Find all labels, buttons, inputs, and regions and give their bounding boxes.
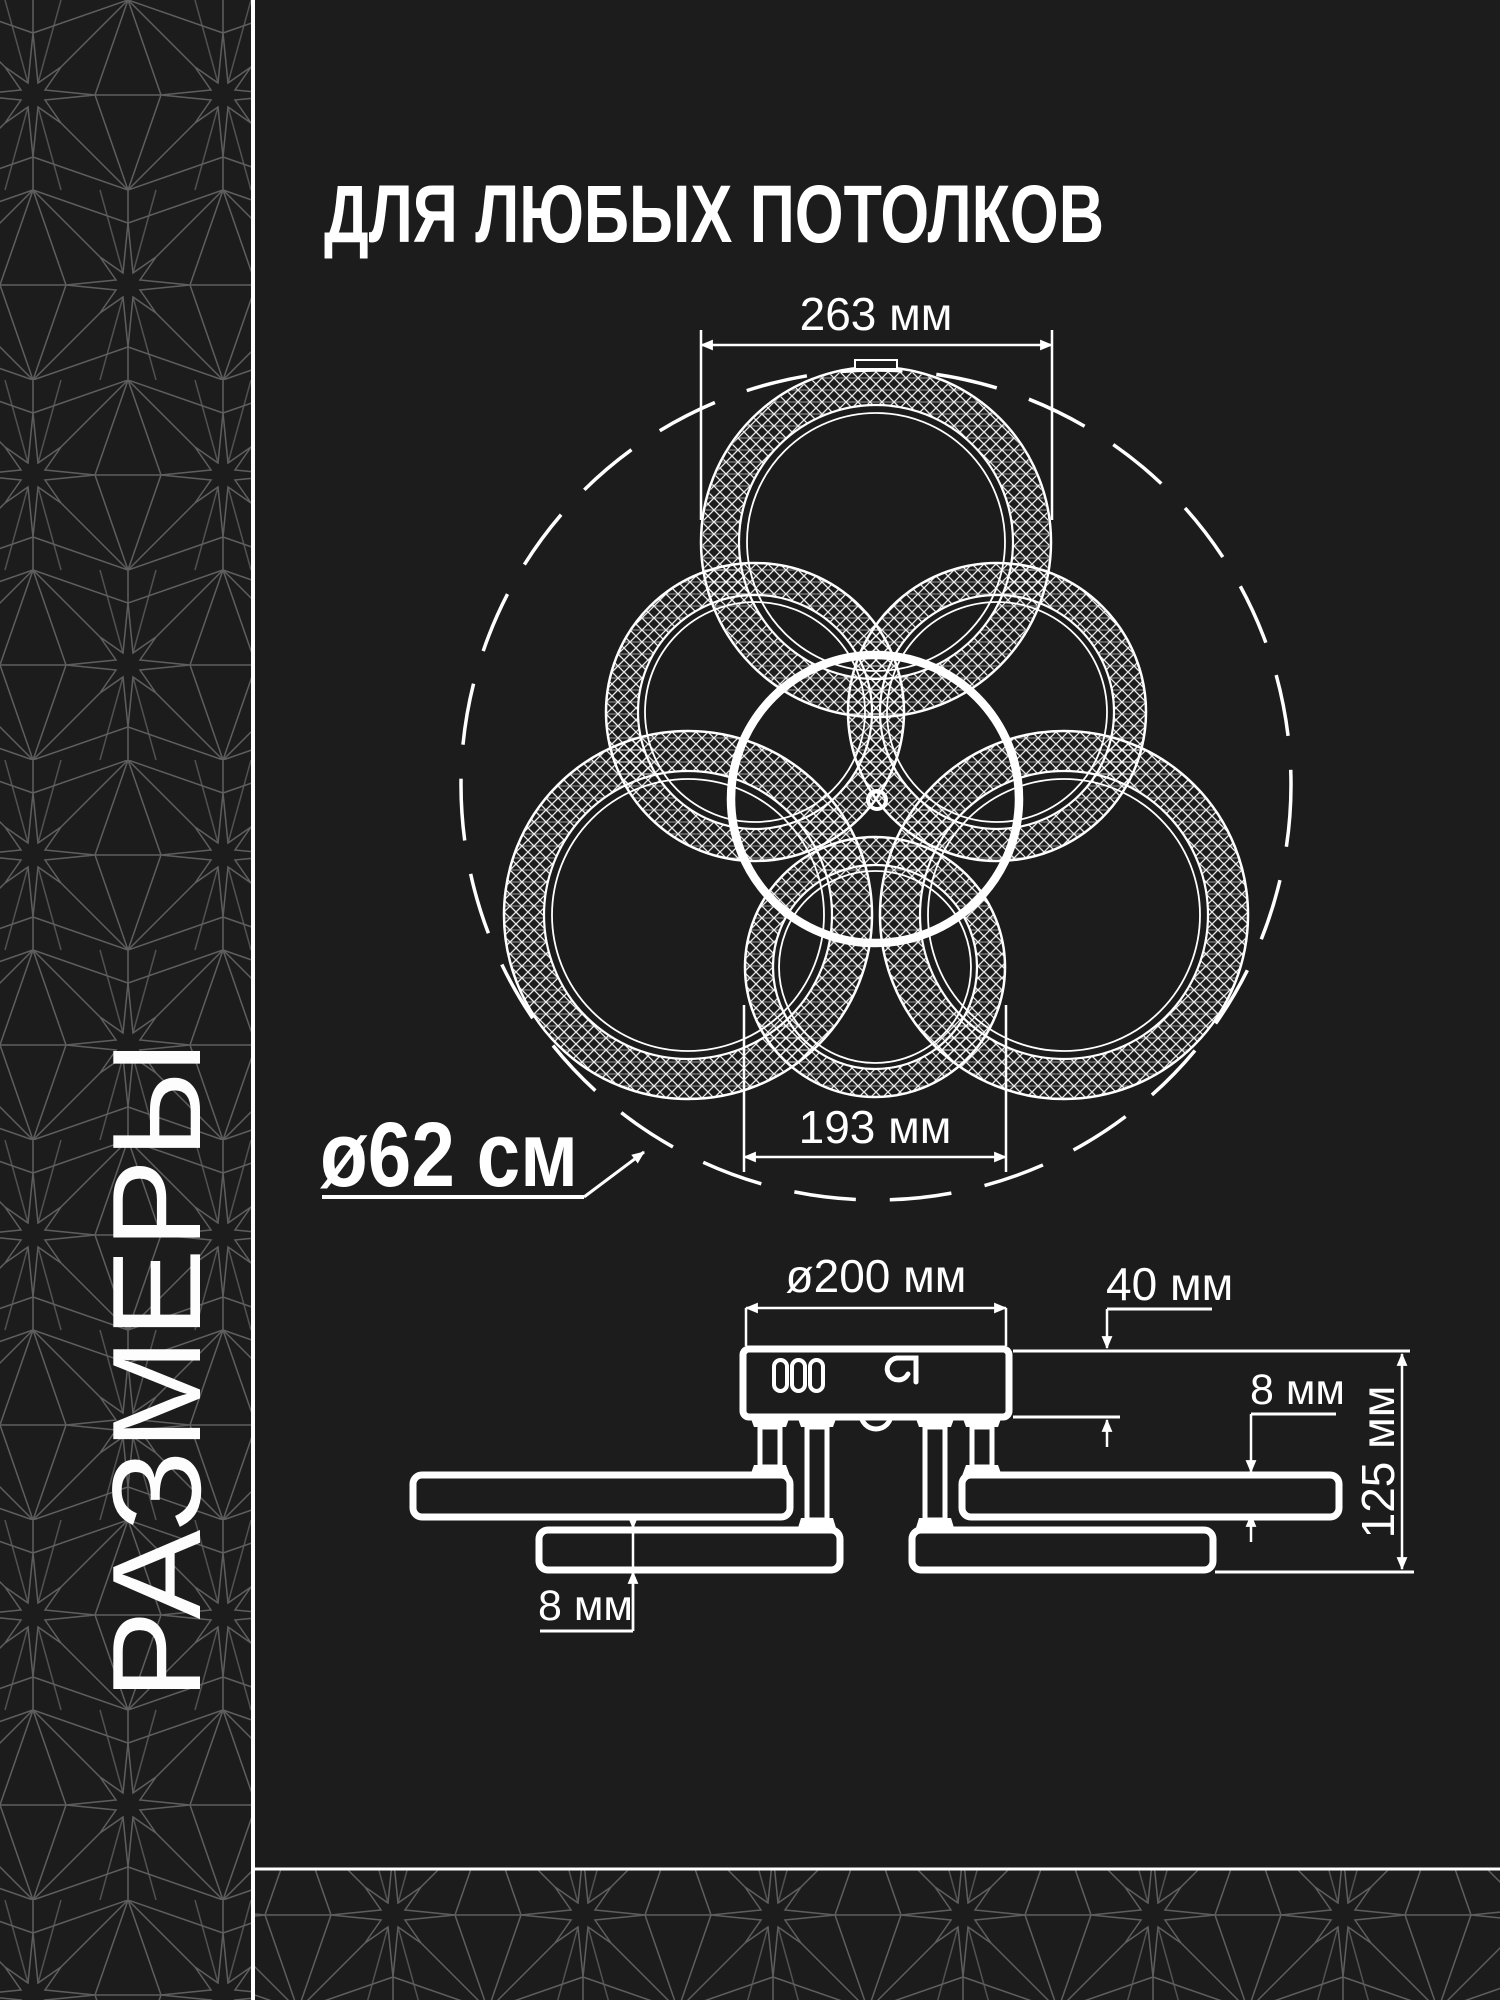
dimensions-vertical-label: РАЗМЕРЫ <box>86 1040 227 1700</box>
overall-diameter-label: ø62 см <box>320 1104 578 1206</box>
page-title: ДЛЯ ЛЮБЫХ ПОТОЛКОВ <box>324 169 1104 260</box>
dim-bottom-label: 193 мм <box>799 1101 952 1153</box>
dim-top-label: 263 мм <box>800 288 953 340</box>
dim-ring-thickness-left-label: 8 мм <box>538 1582 633 1630</box>
scene: ДЛЯ ЛЮБЫХ ПОТОЛКОВ РАЗМЕРЫ <box>0 0 1500 2000</box>
dim-ring-thickness-right-label: 8 мм <box>1250 1366 1345 1414</box>
dim-base-height-label: 40 мм <box>1106 1258 1233 1310</box>
dim-total-height-label: 125 мм <box>1352 1386 1404 1539</box>
infographic-page: ДЛЯ ЛЮБЫХ ПОТОЛКОВ РАЗМЕРЫ <box>0 0 1500 2000</box>
dim-base-diameter-label: ø200 мм <box>786 1250 967 1302</box>
ring-top-tab <box>855 360 897 369</box>
bottom-pattern-band <box>252 1869 1500 2000</box>
